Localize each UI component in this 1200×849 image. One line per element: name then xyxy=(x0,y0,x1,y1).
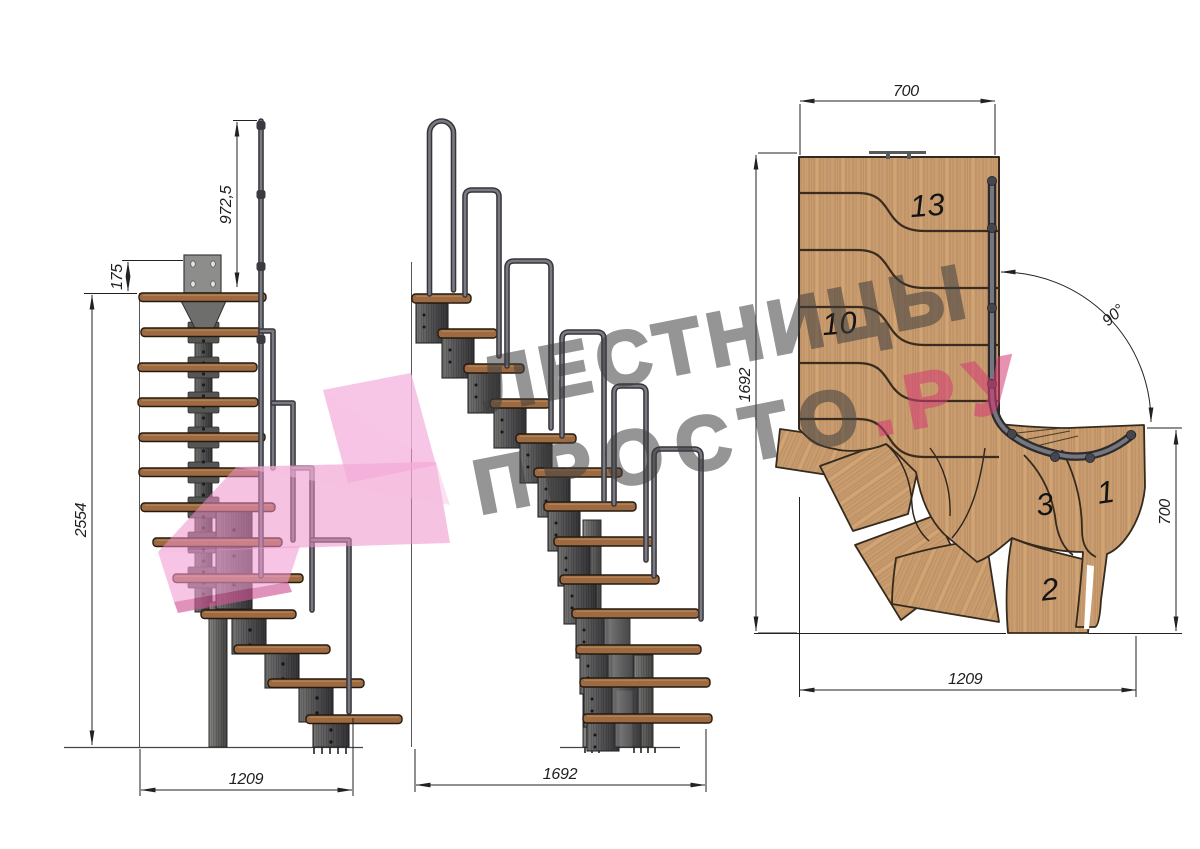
svg-text:90°: 90° xyxy=(1099,301,1128,330)
svg-text:1692: 1692 xyxy=(543,766,578,783)
svg-text:2554: 2554 xyxy=(73,502,90,538)
svg-text:700: 700 xyxy=(893,83,919,100)
svg-text:175: 175 xyxy=(109,264,126,290)
svg-text:1209: 1209 xyxy=(229,771,264,788)
svg-text:13: 13 xyxy=(909,187,946,224)
svg-text:972,5: 972,5 xyxy=(218,185,235,224)
svg-text:700: 700 xyxy=(1157,499,1174,525)
svg-text:1209: 1209 xyxy=(948,671,983,688)
svg-text:2: 2 xyxy=(1038,571,1060,608)
